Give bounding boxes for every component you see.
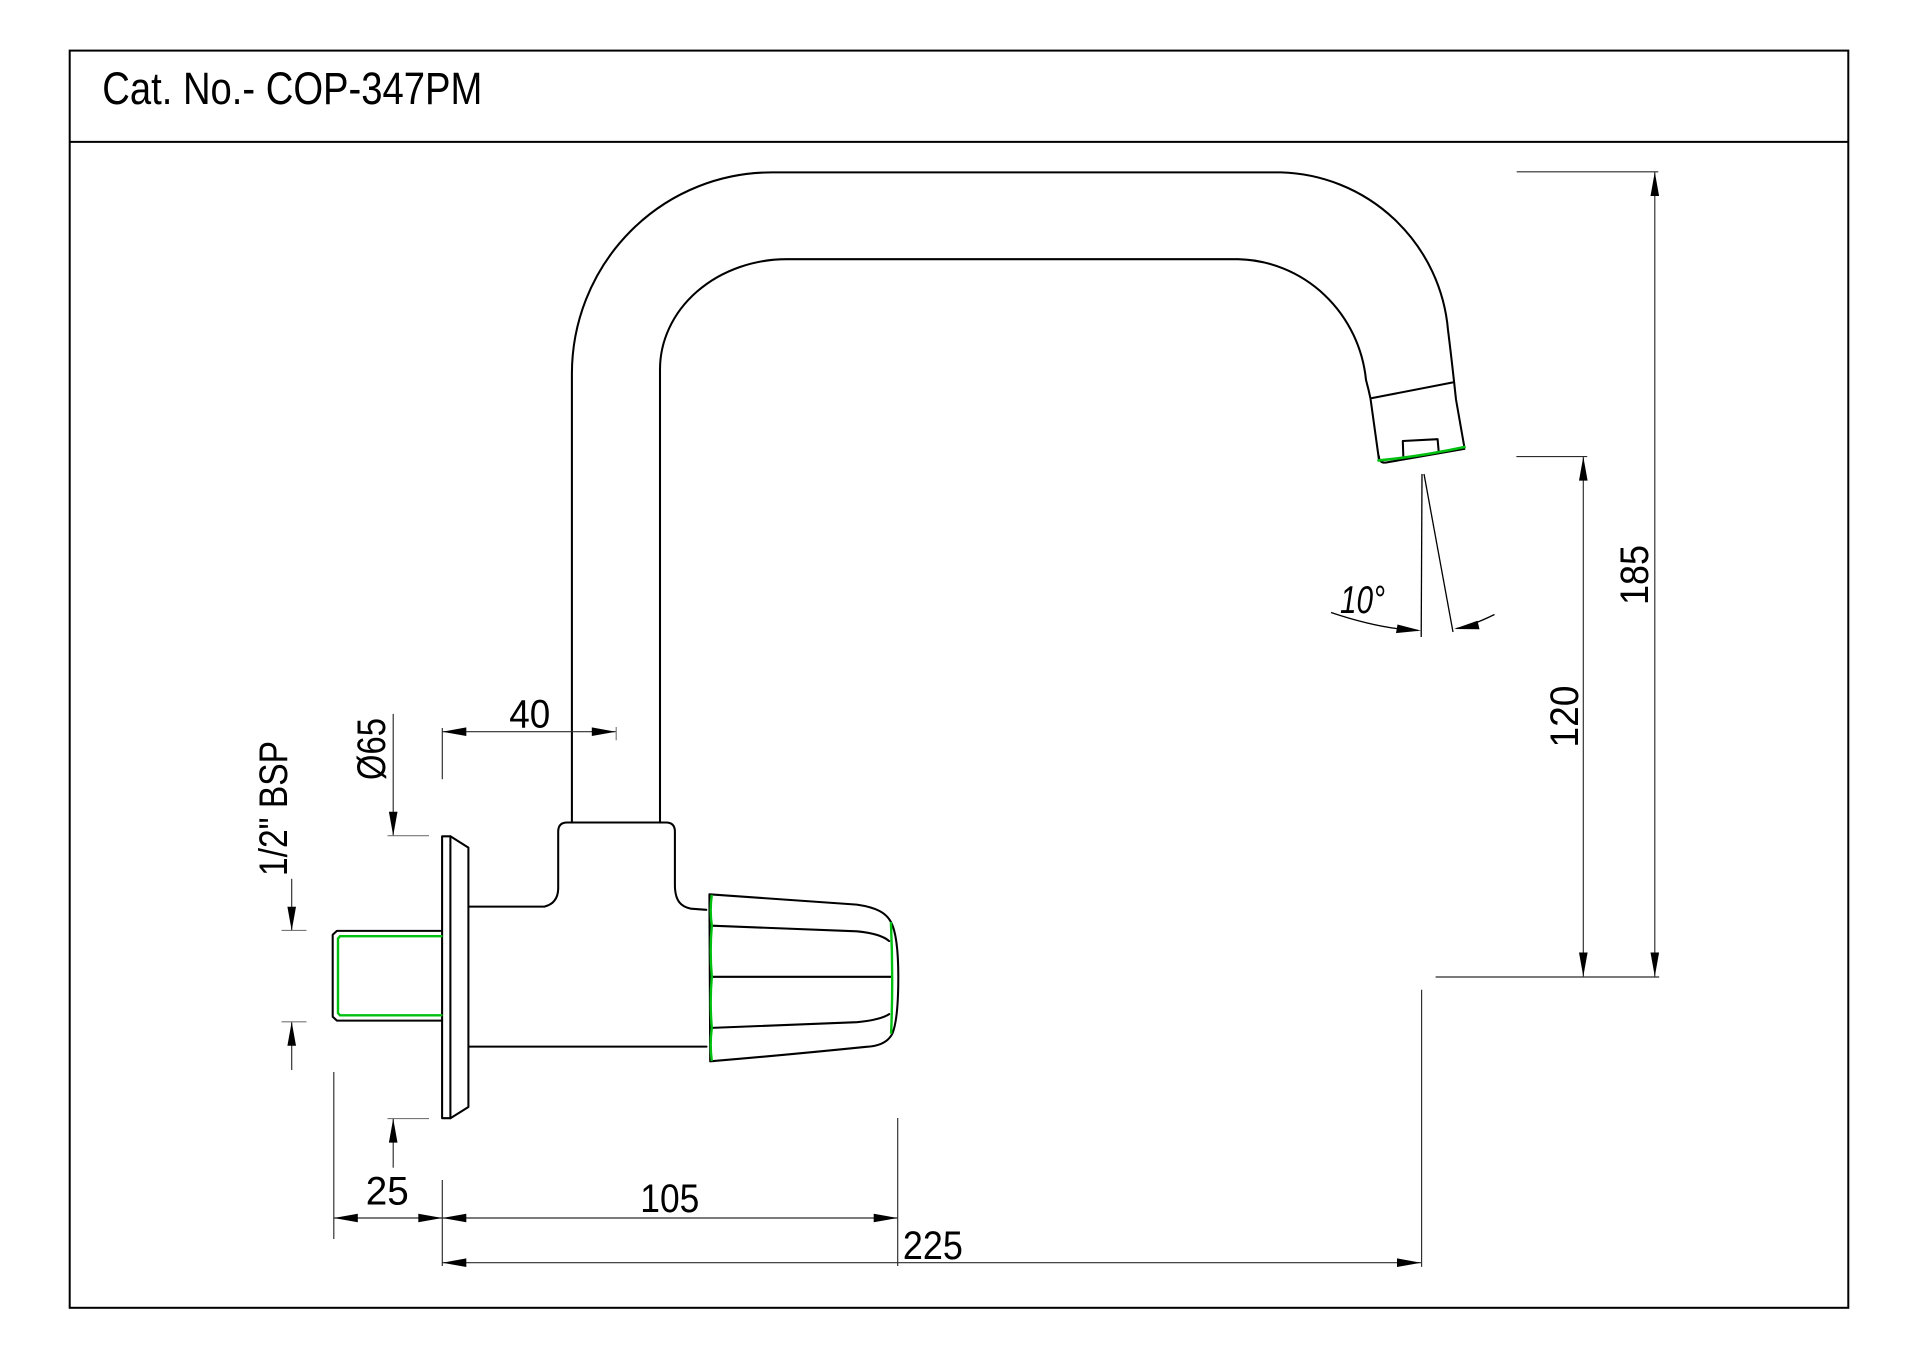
svg-text:120: 120 [1543, 686, 1587, 748]
svg-text:185: 185 [1613, 545, 1657, 605]
svg-text:Ø65: Ø65 [350, 718, 394, 780]
svg-text:1/2" BSP: 1/2" BSP [252, 741, 296, 876]
svg-text:105: 105 [640, 1177, 699, 1221]
svg-text:40: 40 [509, 693, 550, 737]
svg-text:25: 25 [366, 1170, 409, 1214]
svg-text:225: 225 [903, 1224, 963, 1268]
svg-text:Cat. No.- COP-347PM: Cat. No.- COP-347PM [102, 63, 482, 114]
svg-text:10°: 10° [1340, 579, 1385, 622]
